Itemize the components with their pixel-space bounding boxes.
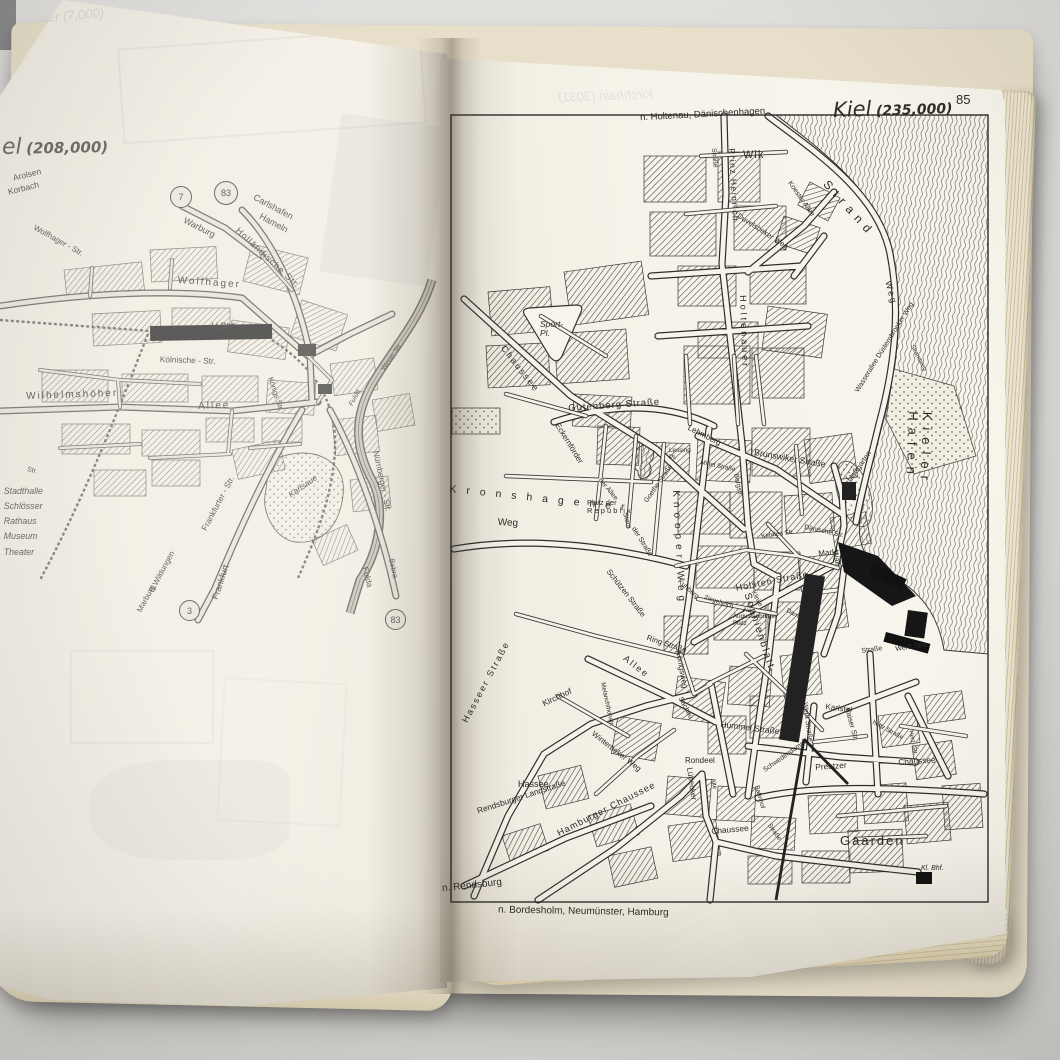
street-label: Allee [198,401,231,413]
street-label: Alte [708,778,717,790]
street-label: Wilhelmshöher [26,389,118,403]
route-badge: 83 [214,181,238,205]
street-label: Damm [785,608,804,623]
street-label: holtz Straße [871,720,904,742]
street-label: Winterbeker Weg [590,730,642,773]
street-label: Fulda [361,566,375,588]
street-label: Straße [709,148,718,168]
street-label: Lessing Pl. [669,448,691,461]
street-label: Preetzer [815,761,847,772]
legend-item: 5. Theater [0,545,43,560]
book-photo: ever (7,000) el (208,000) [0,0,1060,1060]
kassel-map-print: el (208,000) [0,0,447,1008]
street-label: Fulda [348,389,363,408]
street-label: Sachau [676,696,694,720]
street-label: Nürnberger - Str. [371,450,392,512]
street-label: Brunswiker Straße [753,448,826,470]
street-label: Lehmberg [686,424,722,448]
street-label: Schwedendamm [762,739,808,774]
street-label: Korbach [7,180,40,196]
street-label: Str. [26,466,38,476]
street-label: H.Bhf. [211,322,236,332]
street-label: Wolfhager [177,276,241,291]
kiel-street-labels: WikStraßePrinz HeinrichHoltenauerDuvelsb… [440,52,1005,997]
street-label: Chaussee [498,344,540,394]
street-label: Werft Stra. [895,641,929,653]
street-label: Königs Str. [267,376,285,412]
street-label: Holtenauer [737,295,749,369]
legend-item: 4. Museum [0,529,43,544]
street-label: Holsten Straße [735,570,809,593]
street-label: Duvelsbeker Weg [736,212,790,251]
street-label: Strandweg [908,344,927,372]
street-label: Hummel Straße [720,720,780,736]
street-label: der Straße [630,526,654,558]
street-label: Straße [766,823,782,842]
street-label: Frankfurter - Str. [200,475,236,532]
street-label: Wall [831,550,841,565]
street-label: Schloßgarten [841,449,873,490]
street-label: Weg [497,518,518,530]
street-label: Gutenberg Straße [568,398,661,414]
street-label: Chaussee [898,755,936,766]
street-label: Eckernförder [553,422,584,465]
street-label: Bebra [387,558,399,579]
street-label: Herz. Str. [907,730,918,756]
street-label: Kölnische - Str. [160,355,216,366]
street-label: Sport- Pl. [540,320,563,338]
street-label: Strand [821,178,878,240]
map-legend: 1. Stadthalle2. Schlösser3. Rathaus4. Mu… [0,484,43,560]
route-badge: 83 [385,609,406,630]
street-label: Bergstr. [732,473,744,497]
street-label: Melanchthonstr. [598,682,614,727]
street-label: Straße [861,645,883,655]
street-label: Lübecker [685,767,698,801]
street-label: Weser-Str. [380,342,404,372]
street-label: Schützen Straße [604,568,646,619]
street-label: Ziegelteich [703,595,734,611]
street-label: Holländische Str. [233,226,301,291]
street-label: Kehden Str. [761,529,795,540]
left-page: ever (7,000) el (208,000) [0,0,447,1008]
street-label: Warburg [182,216,217,240]
legend-item: 2. Schlösser [0,499,43,514]
street-label: Bahnhof [753,785,766,809]
street-label: Rondeel [685,757,715,765]
street-label: Chaussee [711,824,749,836]
street-label: Marburg [136,584,157,614]
street-label: Kl. Bhf. [921,865,944,872]
street-label: Koester Allee [786,180,816,218]
right-page: Kirchhain (3031) Kiel (235,000) 85 n. Ho… [440,52,1005,997]
street-label: Mittel Straße [700,460,736,474]
street-label: Wasserallee Düsternbrooker Weg [854,301,916,394]
route-badge: 3 [179,600,200,621]
street-label: Wolfhager - Str. [32,224,85,258]
street-label: Hamburger Chaussee [556,781,658,839]
street-label: Wik [743,150,764,162]
street-label: Allee [621,654,651,680]
street-label: Kieler Hafen [904,411,934,487]
legend-item: 3. Rathaus [0,514,43,529]
street-label: Kirchhof [541,687,573,708]
street-label: Werft Straße [801,702,814,742]
kassel-street-labels: ArolsenKorbachCarlshafenHamelnWarburgHol… [0,0,447,1008]
legend-item: 1. Stadthalle [0,484,43,499]
street-label: Hasseer Straße [461,640,512,725]
street-label: Prinz Heinrich [727,148,740,222]
street-label: Karlstal [825,703,853,715]
street-label: Weg [883,280,899,306]
street-label: Königsweg [674,650,689,689]
street-label: Karlsaue [287,473,319,499]
route-badge: 7 [170,186,192,208]
street-label: Frankfurt [211,564,231,601]
street-label: Gaarden [840,834,905,848]
street-label: Dänische Str. [804,524,845,539]
